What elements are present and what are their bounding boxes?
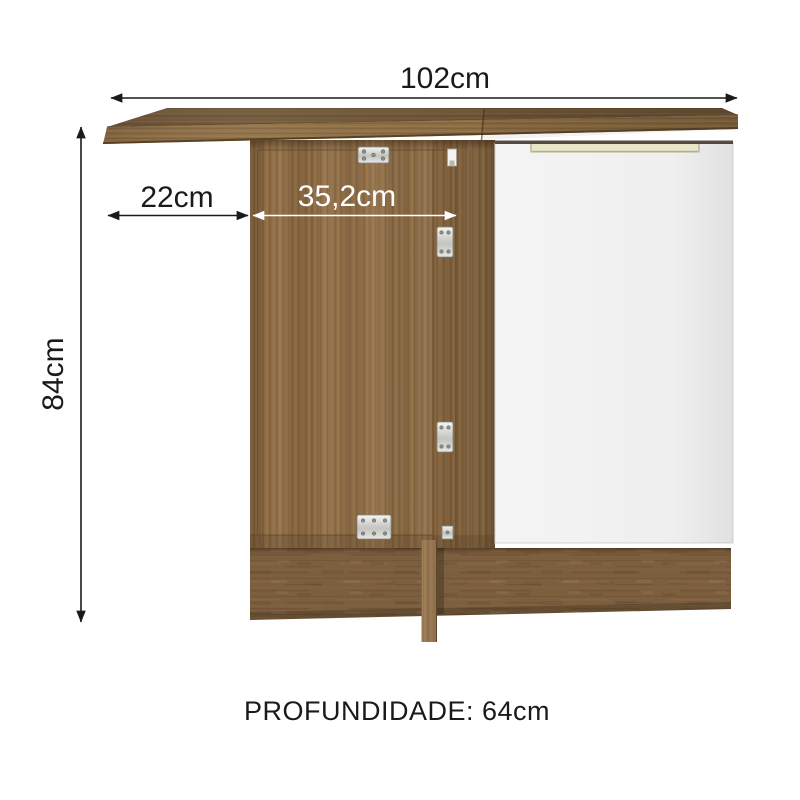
plinth-top-shadow xyxy=(250,548,731,554)
height-label: 84cm xyxy=(37,337,70,410)
countertop xyxy=(103,108,738,144)
width-label: 102cm xyxy=(400,62,490,95)
depth-label: PROFUNDIDADE: 64cm xyxy=(244,696,550,726)
corner-bracket-bottom xyxy=(442,526,453,539)
hinge-bottom xyxy=(357,515,391,539)
support-leg xyxy=(422,540,445,642)
white-door-top-gap xyxy=(495,141,733,145)
plinth xyxy=(250,548,731,620)
hinge-top xyxy=(358,147,389,163)
overhang-label: 22cm xyxy=(140,181,213,214)
support-leg-highlight xyxy=(422,540,438,642)
cabinet-diagram-canvas: 102cm 84cm 22cm 35,2cm PROFUNDIDADE: 64c… xyxy=(0,0,800,800)
white-door-shading xyxy=(495,143,733,543)
dimension-height: 84cm xyxy=(37,127,81,622)
door-width-label: 35,2cm xyxy=(298,180,396,213)
corner-bracket-top xyxy=(448,149,457,166)
countertop-right-piece-tint xyxy=(482,108,739,140)
hinge-mid-upper xyxy=(437,227,453,257)
dimension-left-overhang: 22cm xyxy=(108,181,248,216)
dimension-depth: PROFUNDIDADE: 64cm xyxy=(244,696,550,726)
product-dimension-diagram: 102cm 84cm 22cm 35,2cm PROFUNDIDADE: 64c… xyxy=(0,0,800,800)
door-handle xyxy=(530,144,700,153)
hinge-mid-lower xyxy=(437,422,453,452)
dimension-width: 102cm xyxy=(111,62,737,98)
support-leg-shadow xyxy=(437,548,444,614)
white-door xyxy=(494,141,733,544)
